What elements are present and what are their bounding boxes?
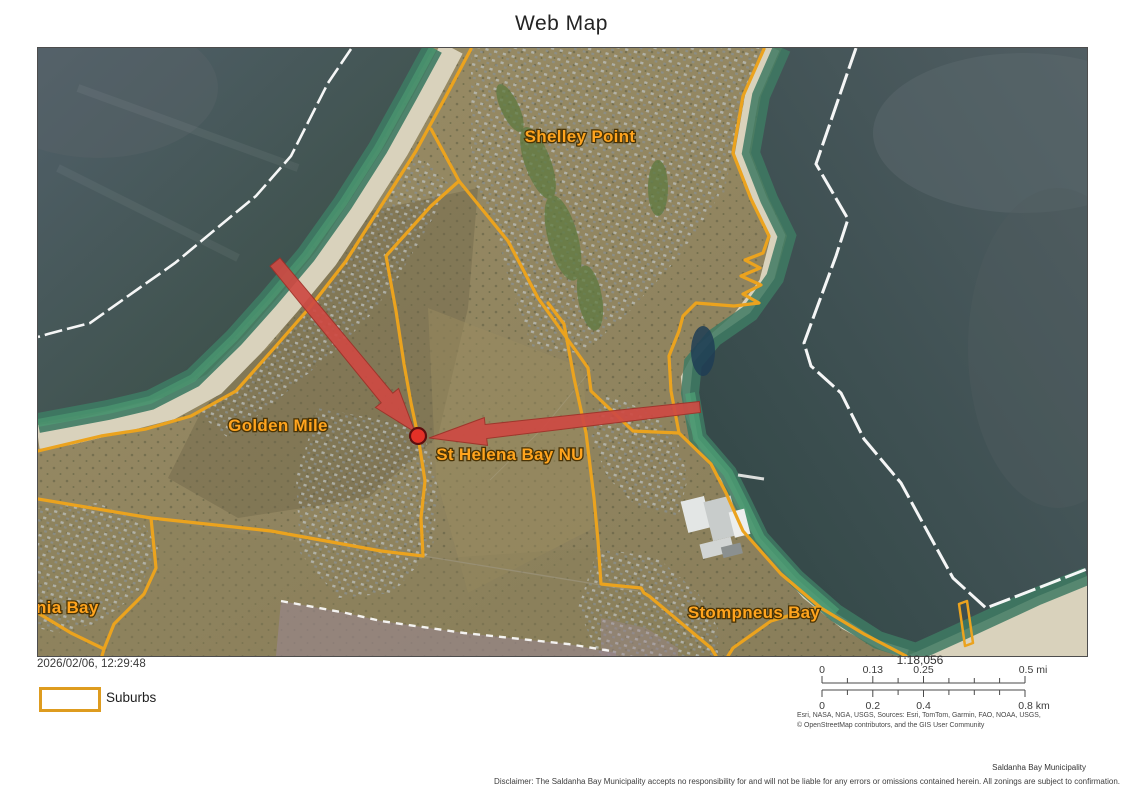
suburb-label-stompneus-bay: Stompneus Bay (688, 603, 821, 622)
export-datetime: 2026/02/06, 12:29:48 (37, 658, 146, 670)
scale-mi-tick-0: 0 (819, 664, 825, 676)
map-canvas[interactable]: Shelley Point Golden Mile St Helena Bay … (37, 47, 1088, 657)
legend-swatch-suburbs (39, 687, 101, 712)
suburb-label-shelley-point: Shelley Point (525, 127, 636, 146)
page-title: Web Map (0, 12, 1123, 36)
page: { "title": "Web Map", "map": { "labels":… (0, 0, 1123, 794)
location-marker[interactable] (410, 428, 426, 444)
cove (691, 326, 715, 376)
scale-mi-tick-1: 0.13 (863, 664, 884, 676)
scale-mi-tick-2: 0.25 (913, 664, 934, 676)
suburb-label-britannia-bay: nia Bay (38, 598, 99, 617)
attribution-line-1: Esri, NASA, NGA, USGS, Sources: Esri, To… (797, 711, 1041, 721)
organization-name: Saldanha Bay Municipality (992, 763, 1086, 772)
suburb-label-st-helena-bay-nu: St Helena Bay NU (436, 445, 583, 464)
scale-mi-end: 0.5 mi (1019, 664, 1048, 676)
scale-bar-miles (822, 676, 1025, 683)
suburb-label-golden-mile: Golden Mile (228, 416, 328, 435)
legend-label: Suburbs (106, 690, 156, 705)
map-attribution: Esri, NASA, NGA, USGS, Sources: Esri, To… (797, 711, 1041, 730)
attribution-line-2: © OpenStreetMap contributors, and the GI… (797, 721, 1041, 731)
scale-bar-km (822, 690, 1025, 697)
map-image: Shelley Point Golden Mile St Helena Bay … (38, 48, 1087, 656)
disclaimer-text: Disclaimer: The Saldanha Bay Municipalit… (20, 777, 1120, 786)
